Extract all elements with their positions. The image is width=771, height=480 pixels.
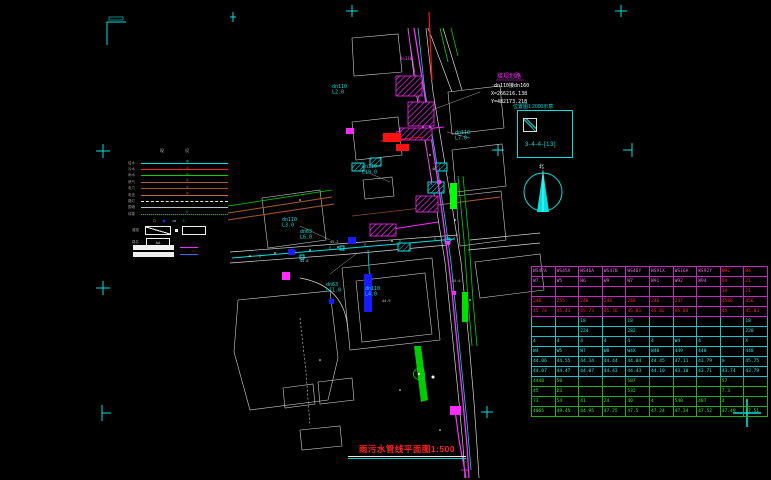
table-cell: 43.71 — [697, 367, 721, 377]
table-cell — [720, 317, 744, 327]
table-cell: 47.5 — [626, 407, 650, 417]
legend-row: 绿篱£ — [128, 211, 228, 217]
table-cell: 45.43 — [555, 307, 579, 317]
table-cell: 246 — [602, 297, 626, 307]
table-cell: W4 — [532, 347, 556, 357]
table-cell: 21 — [744, 277, 768, 287]
pipe-label: dn110L3.0 — [282, 217, 297, 229]
table-cell: 47.52 — [697, 407, 721, 417]
pipe-label: 45.6 — [452, 279, 460, 283]
storm-pipeline-layer — [228, 28, 477, 402]
legend-row-label: 绿篱 — [128, 212, 141, 217]
legend-line-swatch: φ — [141, 188, 228, 189]
table-cell: 45.76 — [602, 307, 626, 317]
pipe-label: 45.2 — [330, 240, 338, 244]
legend-row-label: 燃气 — [128, 180, 141, 185]
table-cell: W48 — [649, 347, 673, 357]
table-cell: 4586 — [720, 297, 744, 307]
table-cell: 44.10 — [649, 367, 673, 377]
drawing-title-text: 雨污水管线平面图1:500 — [348, 443, 466, 455]
table-cell: 40 — [626, 397, 650, 407]
table-cell: W9 — [602, 277, 626, 287]
table-cell — [602, 377, 626, 387]
coordinate-note: 接规划路 dn110接dn160 X=266216.138 Y=482173.2… — [491, 72, 529, 105]
table-cell — [649, 287, 673, 297]
table-cell: 43.10 — [673, 367, 697, 377]
table-cell: 45.74 — [532, 307, 556, 317]
table-cell: 47.11 — [673, 357, 697, 367]
table-cell: 44.07 — [532, 367, 556, 377]
legend-symbol-icon: ◆ — [162, 218, 165, 223]
table-cell: 4 — [602, 337, 626, 347]
legend-row-label: 给水 — [128, 161, 141, 166]
table-cell — [579, 287, 603, 297]
table-cell: W92 — [720, 267, 744, 277]
road-swatch — [145, 226, 171, 235]
legend-row-label: 雨水 — [128, 173, 141, 178]
table-cell — [649, 377, 673, 387]
table-cell: 44.06 — [532, 357, 556, 367]
table-cell — [649, 387, 673, 397]
table-cell: 4 — [649, 397, 673, 407]
pipe-label: 44.8 — [300, 259, 308, 263]
index-box-code: 3-4-4-[13] — [525, 142, 556, 148]
table-cell — [744, 387, 768, 397]
table-cell: 50 — [555, 377, 579, 387]
legend-line-swatch: φ — [141, 182, 228, 183]
legend-line-swatch — [141, 207, 228, 208]
table-cell — [720, 337, 744, 347]
table-cell: 228 — [744, 327, 768, 337]
table-cell: 4 — [579, 337, 603, 347]
table-row: 44485058757 — [532, 377, 768, 387]
table-cell: W7 — [532, 277, 556, 287]
table-row: 406549.4544.9547.2547.547.2447.3447.5247… — [532, 407, 768, 417]
table-cell: 448 — [697, 347, 721, 357]
table-cell: W5 — [555, 347, 579, 357]
table-cell: 282 — [626, 327, 650, 337]
legend-line-swatch: φ — [141, 175, 228, 176]
table-cell: 45 — [532, 387, 556, 397]
table-cell — [555, 287, 579, 297]
legend-rows: 给水φ污水φ雨水φ燃气φ电力φ电信φ路灯围墙绿篱£ — [128, 160, 228, 218]
table-cell: 4065 — [532, 407, 556, 417]
table-cell: W94 — [697, 277, 721, 287]
legend-line-swatch: φ — [141, 195, 228, 196]
legend-road-label: 道路 — [132, 228, 141, 233]
empty-swatch — [182, 226, 206, 235]
legend-marker: φ — [186, 172, 188, 176]
table-cell — [697, 387, 721, 397]
table-cell — [697, 317, 721, 327]
table-row: 181818 — [532, 317, 768, 327]
table-cell: 45.73 — [579, 307, 603, 317]
table-cell: 44.43 — [602, 367, 626, 377]
table-row: 44.0744.4744.0744.4344.4344.1043.1043.71… — [532, 367, 768, 377]
table-cell: 4 — [720, 397, 744, 407]
table-row: WS47AWS45AWS46AWS47BWS46YWS91XWS16AWS92Y… — [532, 267, 768, 277]
legend-road-row: 道路 — [132, 226, 206, 235]
table-cell: 44.55 — [555, 357, 579, 367]
table-cell — [673, 387, 697, 397]
table-cell — [744, 377, 768, 387]
table-cell: 4 — [626, 337, 650, 347]
table-cell: 44.04 — [626, 357, 650, 367]
table-cell: 18 — [626, 317, 650, 327]
new-water-swatch — [180, 254, 198, 255]
pipe-label: dn110L19.0 — [362, 164, 377, 176]
table-cell: 54 — [555, 397, 579, 407]
table-cell: W8 — [602, 347, 626, 357]
table-cell: 21 — [744, 287, 768, 297]
table-cell — [649, 327, 673, 337]
table-row: 224282228 — [532, 327, 768, 337]
table-cell: 45.03 — [744, 307, 768, 317]
table-cell: 4 — [555, 337, 579, 347]
table-cell — [602, 327, 626, 337]
table-cell — [673, 317, 697, 327]
table-cell: WS47A — [532, 267, 556, 277]
table-cell — [626, 287, 650, 297]
table-cell — [697, 287, 721, 297]
node-table: WS47AWS45AWS46AWS47BWS46YWS91XWS16AWS92Y… — [531, 266, 768, 416]
table-cell — [602, 387, 626, 397]
table-cell — [720, 347, 744, 357]
table-cell — [532, 327, 556, 337]
legend-symbol-icon: □ — [153, 218, 155, 223]
pipe-label: 46.1 — [432, 167, 440, 171]
legend-row-label: 污水 — [128, 167, 141, 172]
legend-line-swatch: φ — [141, 169, 228, 170]
table-cell: WS92Y — [697, 267, 721, 277]
legend-marker: φ — [186, 159, 188, 163]
table-cell: 4 — [649, 337, 673, 347]
new-sewer-swatch — [180, 247, 198, 248]
title-underline — [348, 456, 466, 457]
title-underline-2 — [348, 458, 466, 459]
table-cell: 4 — [532, 337, 556, 347]
pipe-label: dn110 — [400, 56, 413, 61]
table-row: 45D35327.3 — [532, 387, 768, 397]
table-cell: 44.45 — [649, 357, 673, 367]
table-cell: 248 — [579, 297, 603, 307]
coord-road-label: 接规划路 — [497, 72, 521, 80]
north-label: 北 — [539, 163, 544, 170]
table-cell: W91 — [649, 277, 673, 287]
legend-symbol-icon: Ł — [183, 218, 185, 223]
table-row: 2462552482462482462474586456 — [532, 297, 768, 307]
legend-row-label: 电力 — [128, 186, 141, 191]
table-cell: 7.3 — [720, 387, 744, 397]
table-cell: 45.82 — [649, 307, 673, 317]
table-cell — [720, 327, 744, 337]
table-cell — [579, 377, 603, 387]
table-cell: 57 — [720, 377, 744, 387]
table-cell: 34 — [720, 287, 744, 297]
table-cell: 540 — [673, 397, 697, 407]
table-cell: WS46A — [579, 267, 603, 277]
pipe-label: dn63L6.0 — [300, 229, 312, 241]
pipe-label: dn110L2.0 — [332, 84, 347, 96]
table-cell — [697, 327, 721, 337]
square-swatch — [175, 229, 178, 232]
index-box-title: 位置图1:2000示意 — [513, 103, 593, 110]
table-cell: 246 — [532, 297, 556, 307]
telecom-line-layer — [228, 197, 500, 220]
table-cell: W4X — [626, 347, 650, 357]
table-cell — [602, 317, 626, 327]
table-cell: 47.51 — [744, 407, 768, 417]
table-cell — [673, 377, 697, 387]
table-row: W7W5W6W9W7W91W92W949421 — [532, 277, 768, 287]
pipe-label: dn110L7.0 — [455, 130, 470, 142]
legend-row-label: 路灯 — [128, 199, 141, 204]
table-cell: 44.07 — [579, 367, 603, 377]
table-cell: 255 — [555, 297, 579, 307]
table-cell: 4448 — [532, 377, 556, 387]
table-row: 44.0644.5544.3444.4444.0444.4547.1143.79… — [532, 357, 768, 367]
table-row: 7354412440454048744 — [532, 397, 768, 407]
table-cell — [673, 327, 697, 337]
table-cell: 44.95 — [579, 407, 603, 417]
table-cell — [602, 287, 626, 297]
table-cell — [697, 307, 721, 317]
table-cell: X — [744, 337, 768, 347]
table-cell — [697, 377, 721, 387]
legend-bar-1 — [133, 245, 174, 250]
table-cell: 44.47 — [555, 367, 579, 377]
coord-pipe-label: dn110接dn160 — [494, 82, 529, 89]
sewer-pipeline-layer — [282, 28, 469, 478]
table-cell: W7 — [626, 277, 650, 287]
table-cell: 18 — [744, 317, 768, 327]
table-cell: D3 — [555, 387, 579, 397]
pipe-label: dn110L4.0 — [365, 286, 380, 298]
table-cell: 47.49 — [720, 407, 744, 417]
north-arrow: 北 — [524, 163, 562, 212]
table-cell: 487 — [697, 397, 721, 407]
pipe-label: dn63L11.0 — [326, 282, 341, 294]
coord-x-value: X=266216.138 — [491, 91, 527, 97]
table-cell: 246 — [649, 297, 673, 307]
table-row: 45.7445.4345.7345.7645.8145.8245.044545.… — [532, 307, 768, 317]
table-cell — [649, 317, 673, 327]
table-cell — [697, 297, 721, 307]
table-cell: WS91X — [649, 267, 673, 277]
table-cell: 448 — [744, 347, 768, 357]
index-box: 位置图1:2000示意 3-4-4-[13] — [517, 110, 573, 158]
table-cell: W92 — [673, 277, 697, 287]
table-row: W4W5W7W8W4XW48449448448 — [532, 347, 768, 357]
table-cell — [532, 287, 556, 297]
table-cell: m — [720, 357, 744, 367]
table-cell: 43.79 — [744, 367, 768, 377]
table-cell: 49.45 — [555, 407, 579, 417]
table-cell: W6 — [579, 277, 603, 287]
legend-row-label: 围墙 — [128, 205, 141, 210]
table-cell: 247 — [673, 297, 697, 307]
table-cell: WS16A — [673, 267, 697, 277]
table-cell: 24 — [602, 397, 626, 407]
legend-marker: φ — [186, 191, 188, 195]
cad-viewport[interactable]: 北 接规划路 dn110接dn160 X=266216.138 Y=482173… — [0, 0, 771, 480]
table-row: 444444W44X — [532, 337, 768, 347]
table-cell — [555, 317, 579, 327]
table-cell: W4 — [673, 337, 697, 347]
table-cell: 47.24 — [649, 407, 673, 417]
table-cell: B4 — [744, 267, 768, 277]
map-labels-layer: dn110L2.0dn110L7.0dn110L19.0dn110L3.0dn6… — [282, 56, 470, 303]
table-cell: 532 — [626, 387, 650, 397]
table-cell: 45 — [720, 307, 744, 317]
pipe-label: 44.9 — [382, 299, 390, 303]
legend-symbol-icon: — — [142, 218, 146, 223]
table-cell: W5 — [555, 277, 579, 287]
table-cell: 45.04 — [673, 307, 697, 317]
legend-symbol-icon: ▭ — [173, 218, 177, 223]
table-cell: WS47B — [602, 267, 626, 277]
legend-marker: φ — [186, 166, 188, 170]
legend-header-existing: 现 — [160, 148, 164, 154]
table-cell — [579, 387, 603, 397]
table-cell: 248 — [626, 297, 650, 307]
table-cell: 94 — [720, 277, 744, 287]
table-cell: 224 — [579, 327, 603, 337]
table-cell: 449 — [673, 347, 697, 357]
legend-row-label: 电信 — [128, 193, 141, 198]
table-cell: 44.34 — [579, 357, 603, 367]
legend-line-swatch — [141, 201, 228, 202]
table-cell: WS46Y — [626, 267, 650, 277]
table-cell: 587 — [626, 377, 650, 387]
table-cell: 44.43 — [626, 367, 650, 377]
table-row: 3421 — [532, 287, 768, 297]
table-cell: WS45A — [555, 267, 579, 277]
table-cell — [555, 327, 579, 337]
table-cell — [673, 287, 697, 297]
table-cell: 47.34 — [673, 407, 697, 417]
table-cell: 456 — [744, 297, 768, 307]
drawing-title: 雨污水管线平面图1:500 — [348, 443, 466, 459]
legend-marker: φ — [186, 185, 188, 189]
table-cell: 41 — [579, 397, 603, 407]
table-cell: 4 — [697, 337, 721, 347]
hatched-square-icon — [523, 118, 537, 132]
table-cell: 43.74 — [720, 367, 744, 377]
legend-line-swatch: φ — [141, 163, 228, 164]
table-cell: 45.75 — [744, 357, 768, 367]
table-cell: 73 — [532, 397, 556, 407]
table-cell: 18 — [579, 317, 603, 327]
legend-symbols: —□◆▭Ł — [142, 218, 186, 223]
legend-line-swatch: £ — [141, 214, 228, 215]
legend-marker: φ — [186, 178, 188, 182]
table-cell: 44.44 — [602, 357, 626, 367]
legend-header-design: 设 — [185, 148, 189, 154]
table-cell: W7 — [579, 347, 603, 357]
table-cell: 45.81 — [626, 307, 650, 317]
legend-marker: £ — [186, 210, 188, 214]
legend-bar-2 — [133, 252, 174, 257]
table-cell: 47.25 — [602, 407, 626, 417]
table-cell: 43.79 — [697, 357, 721, 367]
table-cell — [532, 317, 556, 327]
table-cell: 4 — [744, 397, 768, 407]
